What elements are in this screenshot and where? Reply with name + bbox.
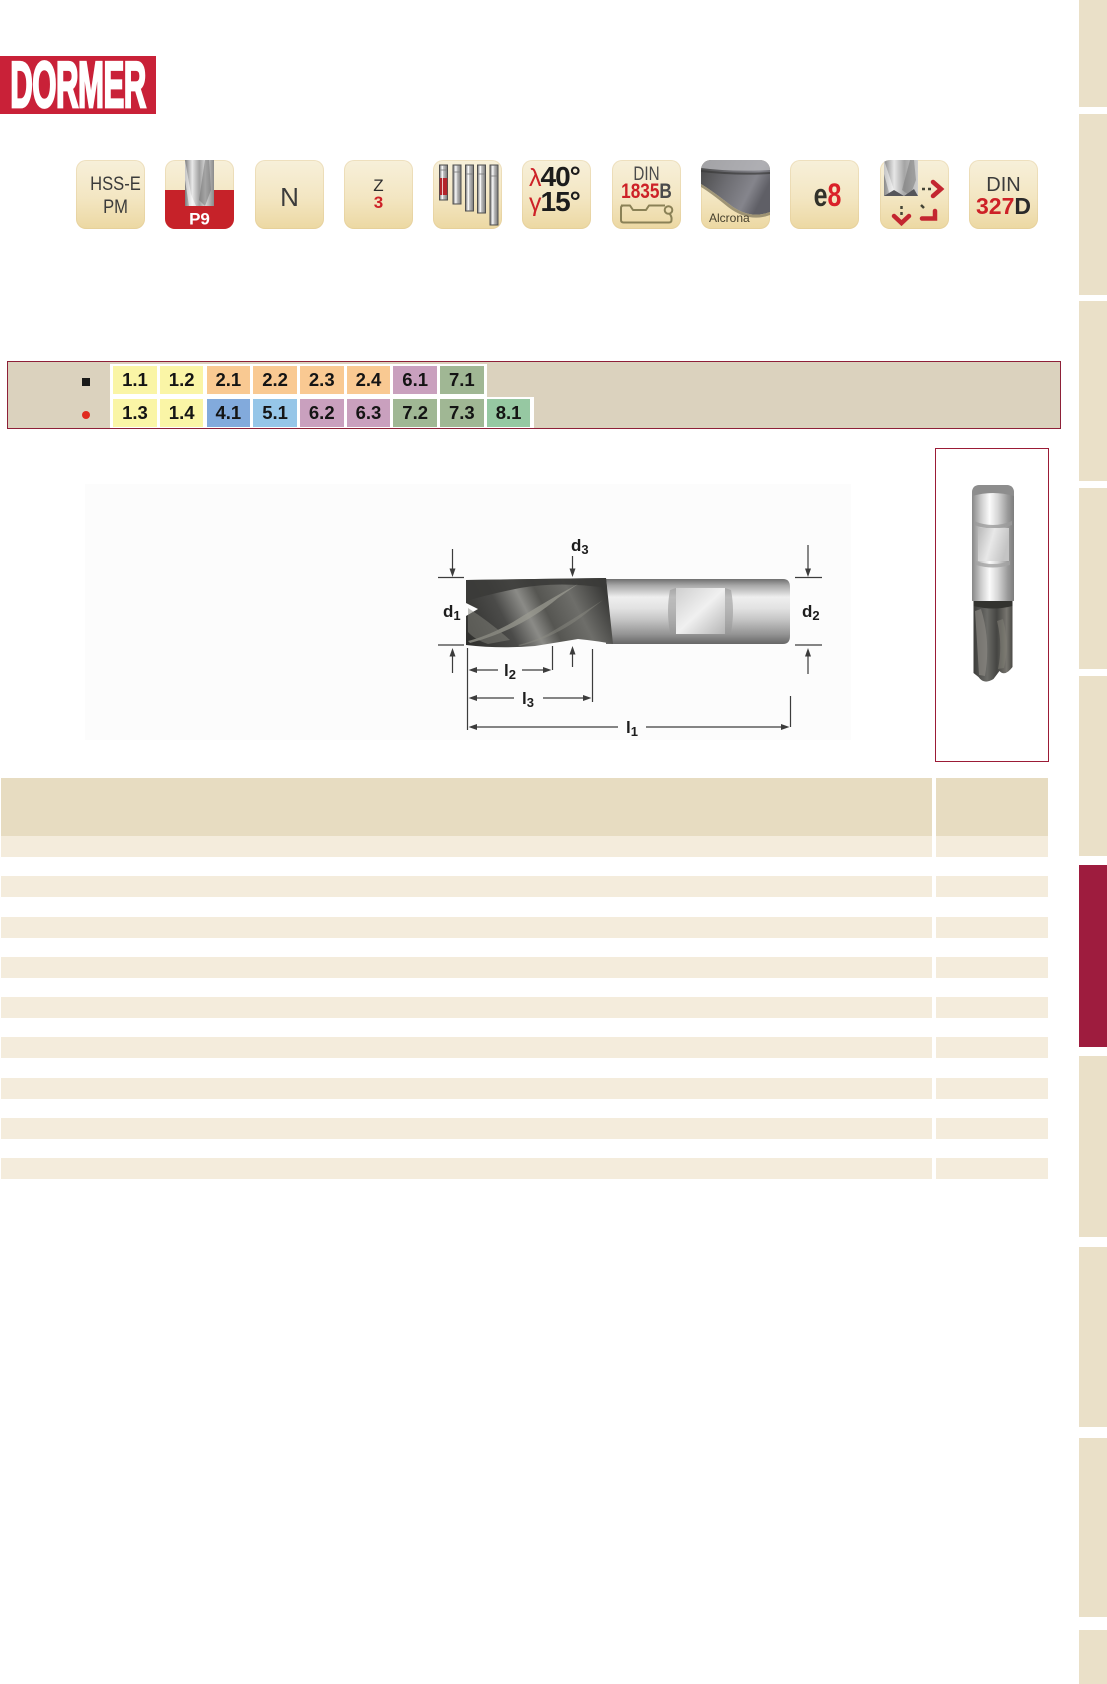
svg-text:d2: d2: [802, 602, 820, 623]
svg-text:l1: l1: [626, 718, 638, 739]
svg-text:d1: d1: [443, 602, 461, 623]
svg-text:Alcrona: Alcrona: [709, 211, 750, 225]
svg-text:l3: l3: [522, 689, 534, 710]
svg-text:l2: l2: [504, 661, 516, 682]
svg-text:d3: d3: [571, 536, 589, 557]
svg-text:P9: P9: [189, 210, 210, 229]
